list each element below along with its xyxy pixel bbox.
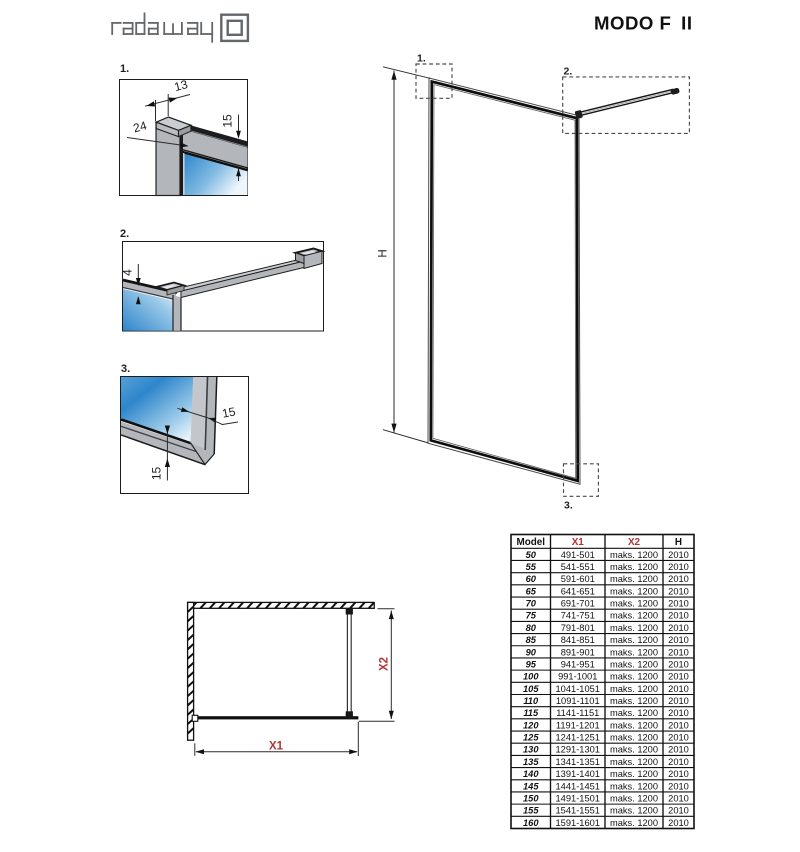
svg-text:2.: 2. [564, 66, 573, 78]
svg-text:95: 95 [526, 659, 537, 669]
svg-text:140: 140 [523, 769, 539, 779]
svg-text:MODO F II: MODO F II [594, 12, 693, 33]
svg-text:maks. 1200: maks. 1200 [610, 708, 658, 718]
svg-text:2.: 2. [120, 228, 129, 240]
svg-text:130: 130 [523, 745, 539, 755]
svg-text:941-951: 941-951 [561, 659, 595, 669]
svg-text:1541-1551: 1541-1551 [556, 806, 600, 816]
svg-text:791-801: 791-801 [561, 623, 595, 633]
svg-text:50: 50 [526, 550, 537, 560]
svg-text:maks. 1200: maks. 1200 [610, 611, 658, 621]
svg-text:maks. 1200: maks. 1200 [610, 586, 658, 596]
svg-text:4: 4 [121, 269, 135, 276]
svg-text:X1: X1 [269, 741, 284, 753]
svg-text:maks. 1200: maks. 1200 [610, 647, 658, 657]
svg-text:2010: 2010 [668, 781, 689, 791]
svg-text:1091-1101: 1091-1101 [556, 696, 600, 706]
svg-text:55: 55 [526, 562, 537, 572]
svg-text:2010: 2010 [668, 818, 689, 828]
svg-text:591-601: 591-601 [561, 574, 595, 584]
svg-text:2010: 2010 [668, 793, 689, 803]
svg-text:1591-1601: 1591-1601 [556, 818, 600, 828]
svg-text:1241-1251: 1241-1251 [556, 733, 600, 743]
svg-text:991-1001: 991-1001 [558, 672, 597, 682]
svg-text:maks. 1200: maks. 1200 [610, 623, 658, 633]
svg-text:1141-1151: 1141-1151 [556, 708, 599, 718]
svg-text:491-501: 491-501 [561, 550, 595, 560]
svg-text:maks. 1200: maks. 1200 [610, 574, 658, 584]
svg-text:2010: 2010 [668, 659, 689, 669]
svg-text:2010: 2010 [668, 684, 689, 694]
svg-text:maks. 1200: maks. 1200 [610, 562, 658, 572]
svg-text:2010: 2010 [668, 611, 689, 621]
svg-text:maks. 1200: maks. 1200 [610, 635, 658, 645]
svg-text:Model: Model [516, 537, 545, 548]
svg-text:160: 160 [523, 818, 539, 828]
svg-text:maks. 1200: maks. 1200 [610, 659, 658, 669]
svg-text:150: 150 [523, 793, 539, 803]
svg-text:90: 90 [526, 647, 537, 657]
svg-text:15: 15 [221, 114, 235, 128]
svg-text:1391-1401: 1391-1401 [556, 769, 600, 779]
svg-text:2010: 2010 [668, 769, 689, 779]
svg-text:641-651: 641-651 [561, 586, 595, 596]
svg-text:145: 145 [523, 781, 539, 791]
svg-text:2010: 2010 [668, 696, 689, 706]
svg-text:H: H [675, 537, 682, 548]
svg-text:2010: 2010 [668, 550, 689, 560]
svg-text:maks. 1200: maks. 1200 [610, 733, 658, 743]
svg-text:80: 80 [526, 623, 537, 633]
svg-text:2010: 2010 [668, 647, 689, 657]
svg-text:2010: 2010 [668, 806, 689, 816]
svg-text:15: 15 [149, 467, 163, 481]
svg-text:85: 85 [526, 635, 537, 645]
svg-text:X1: X1 [572, 537, 585, 548]
svg-text:2010: 2010 [668, 708, 689, 718]
svg-text:60: 60 [526, 574, 537, 584]
svg-text:691-701: 691-701 [561, 599, 595, 609]
svg-text:155: 155 [523, 806, 539, 816]
svg-text:2010: 2010 [668, 635, 689, 645]
svg-text:135: 135 [523, 757, 539, 767]
svg-text:1191-1201: 1191-1201 [556, 720, 600, 730]
svg-text:maks. 1200: maks. 1200 [610, 550, 658, 560]
svg-text:maks. 1200: maks. 1200 [610, 745, 658, 755]
svg-text:120: 120 [523, 720, 539, 730]
svg-text:1.: 1. [120, 63, 129, 75]
svg-text:maks. 1200: maks. 1200 [610, 793, 658, 803]
svg-text:1441-1451: 1441-1451 [556, 781, 600, 791]
svg-text:3.: 3. [564, 500, 573, 512]
svg-text:115: 115 [523, 708, 539, 718]
svg-text:110: 110 [523, 696, 539, 706]
svg-text:3.: 3. [121, 363, 130, 375]
svg-text:1041-1051: 1041-1051 [556, 684, 600, 694]
svg-text:maks. 1200: maks. 1200 [610, 781, 658, 791]
svg-text:125: 125 [523, 733, 539, 743]
svg-text:2010: 2010 [668, 586, 689, 596]
svg-text:2010: 2010 [668, 623, 689, 633]
svg-text:841-851: 841-851 [561, 635, 595, 645]
svg-text:1491-1501: 1491-1501 [556, 793, 600, 803]
svg-text:891-901: 891-901 [561, 647, 595, 657]
svg-text:maks. 1200: maks. 1200 [610, 818, 658, 828]
svg-text:X2: X2 [628, 537, 641, 548]
svg-text:2010: 2010 [668, 672, 689, 682]
svg-text:2010: 2010 [668, 599, 689, 609]
svg-text:1291-1301: 1291-1301 [556, 745, 600, 755]
svg-text:65: 65 [526, 586, 537, 596]
svg-text:maks. 1200: maks. 1200 [610, 696, 658, 706]
svg-text:2010: 2010 [668, 745, 689, 755]
svg-text:maks. 1200: maks. 1200 [610, 599, 658, 609]
svg-text:2010: 2010 [668, 574, 689, 584]
svg-text:H: H [378, 249, 390, 257]
svg-text:X2: X2 [379, 657, 391, 671]
svg-text:541-551: 541-551 [561, 562, 595, 572]
svg-text:105: 105 [523, 684, 539, 694]
svg-text:2010: 2010 [668, 720, 689, 730]
svg-text:maks. 1200: maks. 1200 [610, 757, 658, 767]
svg-text:100: 100 [523, 672, 539, 682]
svg-text:maks. 1200: maks. 1200 [610, 684, 658, 694]
svg-text:70: 70 [526, 599, 537, 609]
svg-text:75: 75 [526, 611, 537, 621]
svg-text:maks. 1200: maks. 1200 [610, 769, 658, 779]
svg-text:741-751: 741-751 [561, 611, 595, 621]
svg-text:maks. 1200: maks. 1200 [610, 806, 658, 816]
svg-text:maks. 1200: maks. 1200 [610, 720, 658, 730]
svg-text:2010: 2010 [668, 757, 689, 767]
svg-text:maks. 1200: maks. 1200 [610, 672, 658, 682]
svg-text:1.: 1. [417, 53, 426, 65]
svg-text:2010: 2010 [668, 562, 689, 572]
svg-text:1341-1351: 1341-1351 [556, 757, 600, 767]
svg-text:2010: 2010 [668, 733, 689, 743]
